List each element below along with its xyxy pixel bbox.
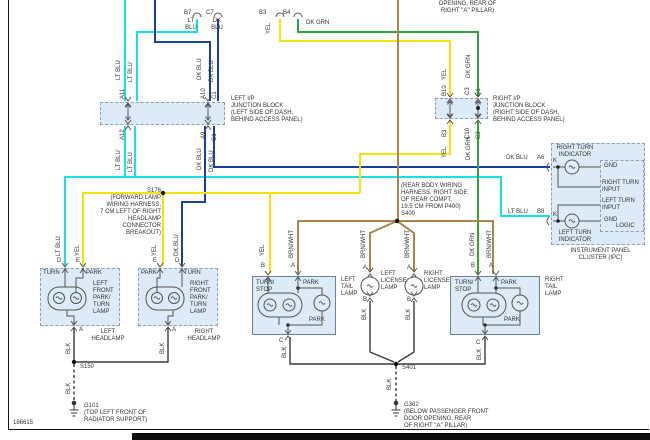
wire-label-dk-blu-2: DK BLU [209,60,216,82]
wire-label-lt-blu-4: LT BLU [128,152,135,172]
left-tail-lamp-title: LEFT TAIL LAMP [341,277,357,298]
pin-d-rf: D [175,258,179,265]
wire-label-lt-blu-lf: LT BLU [56,236,63,256]
wire-label-lt-blu-2: LT BLU [128,62,135,82]
pin-c-lt: C [279,338,283,345]
wire-label-dkblu-ipc: DK BLU [506,155,528,162]
right-front-lamp-title: RIGHT FRONT PARK/ TURN LAMP [190,281,211,316]
wire-label-yel-top: YEL [266,23,273,34]
left-headlamp-label: LEFT HEADLAMP [88,329,128,343]
pin-c7: C7 [206,10,214,17]
pin-c3: C3 [465,87,472,95]
ipc-right-turn-input: RIGHT TURN INPUT [602,180,639,194]
pin-a-lf: A [79,327,83,334]
wire-label-dk-blu-4: DK BLU [209,150,216,172]
pin-c2: C2 [476,131,483,139]
pin-a12: A12 [120,129,127,140]
label-park-lt-bulb: PARK [309,317,325,324]
label-turnstop-rt: TURN/ STOP [455,280,473,294]
wire-label-blk-lf: BLK [66,343,73,354]
wire-label-blk-llic: BLK [362,309,369,320]
document-number: 186615 [13,420,33,427]
wire-label-brnwht-rt: BRN/WHT [487,230,494,258]
wire-label-dk-grn-top: DK GRN [306,20,329,27]
ipc-logic-label: LOGIC [616,223,635,230]
ipc-left-turn-input: LEFT TURN INPUT [602,198,635,212]
wire-label-lt-blu-b7: LT BLU [185,18,197,32]
pin-d-lf: D [57,258,61,265]
right-junction-block-note: RIGHT I/P JUNCTION BLOCK (RIGHT SIDE OF … [493,96,565,124]
label-park-lt-top: PARK [303,280,319,287]
right-tail-lamp-title: RIGHT TAIL LAMP [545,277,564,298]
label-park-lf: PARK [86,270,102,277]
label-turn-rf: TURN [184,270,201,277]
pin-c1-bottom: C1 [212,133,219,141]
pin-b-rlic: B [407,297,411,304]
pin-b7: B7 [184,10,191,17]
pin-e-lf: E [76,258,80,265]
ground-g101-note: G101 (TOP LEFT FRONT OF RADIATOR SUPPORT… [84,403,147,424]
wire-label-ltblu-ipc: LT BLU [508,209,528,216]
wire-label-blk-g302: BLK [387,379,394,390]
wiring-diagram-page: B7 C7 LT BLU DK BLU B3 B4 YEL DK GRN OPE… [0,0,650,440]
wire-label-dkgrn-rt: DK GRN [470,233,477,256]
pin-b10: B10 [442,85,449,96]
pin-a-llic: A [363,265,367,272]
wire-label-blk-rf: BLK [160,343,167,354]
wire-label-dk-blu-c7: DK BLU [211,18,223,32]
pin-k-top: K [553,158,557,165]
splice-s150-label: S150 [80,364,94,371]
pin-a9: A9 [201,132,208,139]
wire-label-yel-lt: YEL [260,245,267,256]
left-junction-block-note: LEFT I/P JUNCTION BLOCK (LEFT SIDE OF DA… [231,96,303,124]
left-license-lamp-title: LEFT LICENSE LAMP [381,271,407,292]
ground-g302-note: G302 (BELOW PASSENGER FRONT DOOR OPENING… [404,402,489,430]
pin-e-rf: E [153,258,157,265]
pin-b8: B8 [537,209,544,216]
top-right-note: OPENING, REAR OF RIGHT ''A'' PILLAR) [400,1,535,15]
label-park-rt-bulb: PARK [504,317,520,324]
wire-label-blk-rlic: BLK [406,309,413,320]
right-headlamp-label: RIGHT HEADLAMP [183,329,225,343]
pin-a-lt: A [291,263,295,270]
pin-b3-top: B3 [259,10,266,17]
wire-label-dk-blu-3: DK BLU [197,148,204,170]
pin-a6: A6 [537,155,544,162]
pin-c-rt: C [476,340,480,347]
pin-c1-top: C1 [212,91,219,99]
wire-label-blk-lt: BLK [282,347,289,358]
ipc-title: INSTRUMENT PANEL CLUSTER (IPC) [553,248,648,262]
wire-label-dk-blu-1: DK BLU [197,58,204,80]
ipc-gnd-top: GND [604,163,617,170]
left-turn-indicator-label: LEFT TURN INDICATOR [553,230,597,244]
wire-label-lt-blu-1: LT BLU [116,60,123,80]
label-park-rf: PARK [141,270,157,277]
wire-label-brnwht-llic: BRN/WHT [361,230,368,258]
pin-b4-top: B4 [283,10,290,17]
pin-a10: A10 [201,88,208,99]
pin-b-lt: B [261,263,265,270]
left-front-lamp-title: LEFT FRONT PARK/ TURN LAMP [93,281,114,316]
wire-label-dk-grn-rjb-bottom: DK GRN [466,137,473,160]
pin-a-rf: A [172,327,176,334]
pin-b-rt: B [471,263,475,270]
wire-label-brnwht-rlic: BRN/WHT [405,230,412,258]
wire-label-dk-blu-rf: DK BLU [174,234,181,256]
pin-b-llic: B [363,297,367,304]
wire-label-blk-g101: BLK [66,383,73,394]
label-turn-lf: TURN [43,270,60,277]
wire-label-dk-grn-rjb-top: DK GRN [466,55,473,78]
pin-k-bottom: K [553,212,557,219]
right-turn-indicator-label: RIGHT TURN INDICATOR [553,145,597,159]
wire-label-brnwht-lt: BRN/WHT [289,230,296,258]
splice-s400-note: (REAR BODY WIRING HARNESS, RIGHT SIDE OF… [401,183,476,218]
wire-label-blk-rt: BLK [477,349,484,360]
splice-s176-note: S176 (FORWARD LAMP WIRING HARNESS, 7 CM … [93,188,161,237]
wire-label-lt-blu-3: LT BLU [116,150,123,170]
right-license-lamp-title: RIGHT LICENSE LAMP [424,271,450,292]
splice-s401-label: S401 [402,365,416,372]
wire-label-yel-lf: YEL [75,245,82,256]
label-park-rt-top: PARK [501,280,517,287]
pin-a-rt: A [489,263,493,270]
pin-c1-rjb: C1 [476,88,483,96]
pin-b3-rjb: B3 [442,130,449,137]
pin-a-rlic: A [407,265,411,272]
wire-label-yel-rjb-top: YEL [442,69,449,80]
wire-label-yel-rf: YEL [152,245,159,256]
pin-a11: A11 [120,89,127,99]
wire-label-yel-rjb-bottom: YEL [442,147,449,158]
label-turnstop-lt: TURN/ STOP [256,280,274,294]
